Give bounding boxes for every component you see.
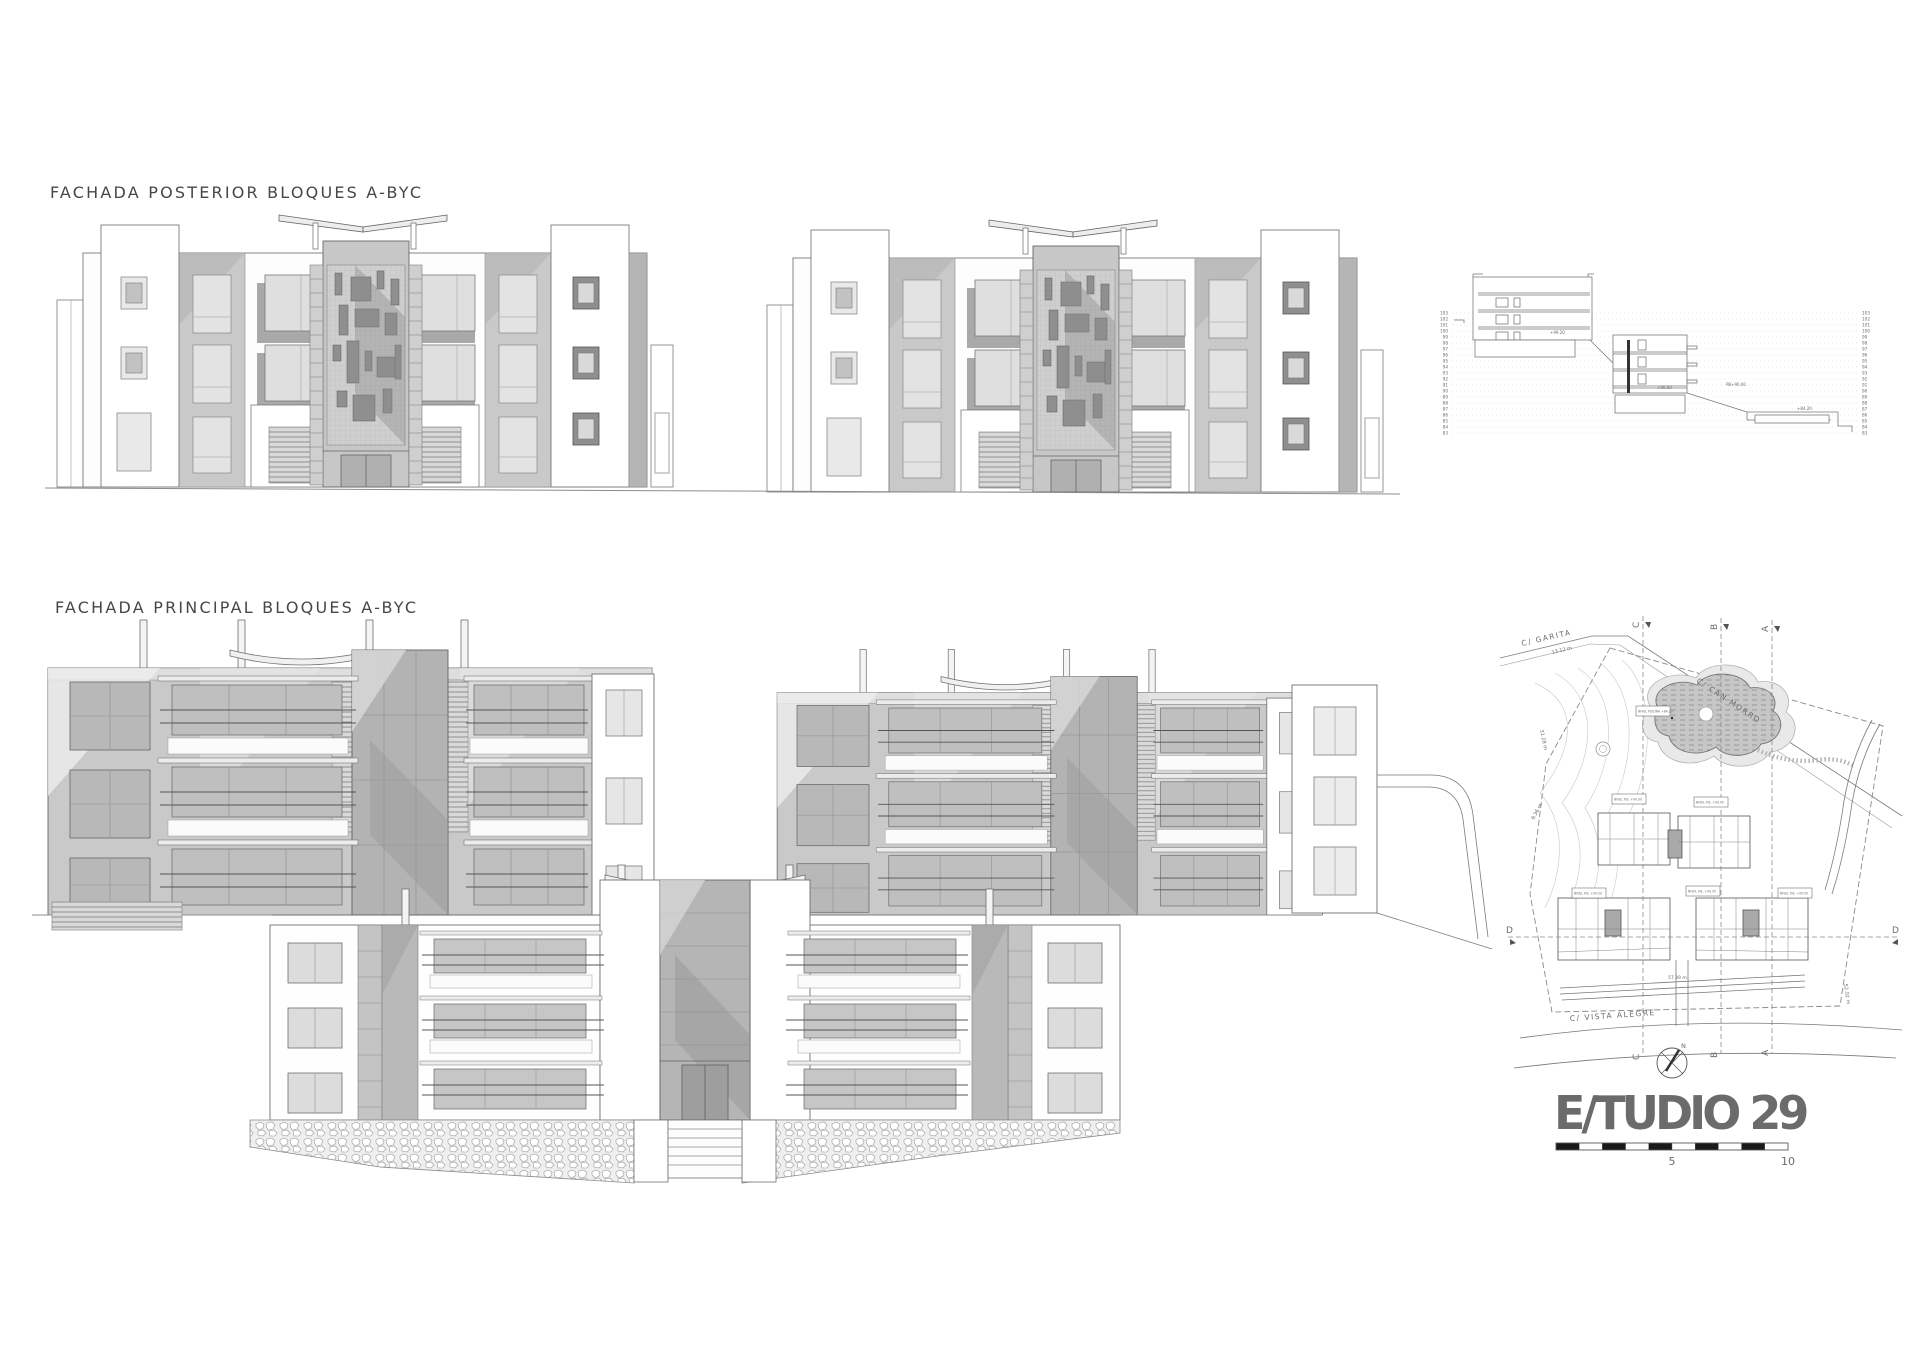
- level-label-lower-1: NIVEL P.B. +99.50: [1574, 892, 1602, 896]
- level-label-upper-2: NIVEL P.B. +90.00: [1696, 801, 1724, 805]
- pool: [1596, 665, 1854, 766]
- section-level-right: 88: [1862, 401, 1868, 406]
- mark-d-right: D: [1892, 926, 1899, 936]
- level-label-lower-2: NIVEL P.B. +99.50: [1688, 890, 1716, 894]
- section-level-left: 93: [1443, 371, 1449, 376]
- level-label-lower-3: NIVEL P.B. +99.50: [1780, 892, 1808, 896]
- section-level-right: 86: [1862, 413, 1868, 418]
- section-level-right: 95: [1862, 359, 1868, 364]
- section-level-left: 88: [1443, 401, 1449, 406]
- section-level-right: 91: [1862, 383, 1868, 388]
- section-level-left: 101: [1440, 323, 1448, 328]
- section-level-right: 99: [1862, 335, 1868, 340]
- studio-logo: E/TUDIO 29: [1554, 1086, 1807, 1140]
- dim-left-lower: 9.36 m: [1530, 802, 1544, 820]
- section-level-left: 86: [1443, 413, 1449, 418]
- level-label-pool: NIVEL PISCINA +84.20: [1638, 710, 1673, 714]
- section-level-left: 94: [1443, 365, 1449, 370]
- section-level-right: 84: [1862, 425, 1868, 430]
- section-annotation: PB+90.00: [1726, 382, 1746, 387]
- dim-right: 52.02 m: [1842, 983, 1851, 1005]
- section-level-left: 97: [1443, 347, 1449, 352]
- slatted-terrace: [52, 902, 182, 930]
- mark-c-bottom: C: [1632, 1054, 1642, 1060]
- section-level-left: 103: [1440, 311, 1448, 316]
- section-level-left: 87: [1443, 407, 1449, 412]
- section-level-right: 101: [1862, 323, 1870, 328]
- dim-bottom: 57.39 m: [1668, 975, 1687, 981]
- section-level-right: 94: [1862, 365, 1868, 370]
- section-level-right: 83: [1862, 431, 1868, 436]
- section-level-right: 97: [1862, 347, 1868, 352]
- logo-block: E/TUDIO 29 5 10: [1552, 1085, 1807, 1180]
- section-level-left: 95: [1443, 359, 1449, 364]
- section-level-left: 89: [1443, 395, 1449, 400]
- mark-b-top: B: [1710, 624, 1720, 630]
- section-level-left: 91: [1443, 383, 1449, 388]
- section-middle-building: [1613, 335, 1697, 413]
- dim-top: 13.12 m: [1551, 645, 1573, 656]
- section-level-left: 84: [1443, 425, 1449, 430]
- section-annotation: +84.20: [1797, 406, 1812, 411]
- level-label-upper-1: NIVEL P.B. +90.00: [1614, 798, 1642, 802]
- right-end-tower-and-ramp: [1292, 685, 1492, 949]
- mark-d-left: D: [1506, 926, 1513, 936]
- mark-a-top: A: [1761, 625, 1771, 632]
- section-level-right: 87: [1862, 407, 1868, 412]
- section-level-left: 83: [1443, 431, 1449, 436]
- section-level-right: 92: [1862, 377, 1868, 382]
- graphic-scale-bar: [1556, 1143, 1788, 1150]
- section-level-left: 85: [1443, 419, 1449, 424]
- scale-mid-label: 5: [1669, 1155, 1676, 1168]
- section-level-left: 92: [1443, 377, 1449, 382]
- site-plan-drawing: C B A C B A D D C/ GARITA C/ CAN MORRO C…: [1500, 598, 1910, 1098]
- section-level-left: 99: [1443, 335, 1449, 340]
- scale-end-label: 10: [1781, 1155, 1795, 1168]
- section-annotation: +90.00: [1657, 385, 1672, 390]
- section-level-left: 102: [1440, 317, 1448, 322]
- section-level-right: 90: [1862, 389, 1868, 394]
- section-level-left: 100: [1440, 329, 1448, 334]
- dim-left-upper: 31.28 m: [1538, 729, 1548, 751]
- section-level-left: 98: [1443, 341, 1449, 346]
- section-level-left: 90: [1443, 389, 1449, 394]
- section-level-right: 103: [1862, 311, 1870, 316]
- street-garita-label: C/ GARITA: [1520, 628, 1572, 648]
- section-level-right: 85: [1862, 419, 1868, 424]
- section-level-right: 96: [1862, 353, 1868, 358]
- drawing-sheet: FACHADA POSTERIOR BLOQUES A-BYC FACHADA …: [0, 0, 1920, 1357]
- section-level-right: 93: [1862, 371, 1868, 376]
- building-footprints: [1558, 813, 1808, 960]
- principal-facade-drawing: PB+90.00: [30, 615, 1505, 1200]
- posterior-facade-drawing: [40, 195, 1410, 510]
- north-label: N: [1681, 1042, 1686, 1050]
- north-compass: N: [1657, 1042, 1687, 1078]
- section-level-right: 98: [1862, 341, 1868, 346]
- section-level-right: 102: [1862, 317, 1870, 322]
- section-annotation: +99.20: [1550, 330, 1565, 335]
- mark-a-bottom: A: [1761, 1049, 1771, 1056]
- section-level-right: 89: [1862, 395, 1868, 400]
- mark-b-bottom: B: [1710, 1052, 1720, 1058]
- mark-c-top: C: [1632, 622, 1642, 628]
- section-drawing: 1031031021021011011001009999989897979696…: [1440, 260, 1892, 455]
- section-level-right: 100: [1862, 329, 1870, 334]
- section-level-left: 96: [1443, 353, 1449, 358]
- section-upper-building: [1454, 274, 1594, 357]
